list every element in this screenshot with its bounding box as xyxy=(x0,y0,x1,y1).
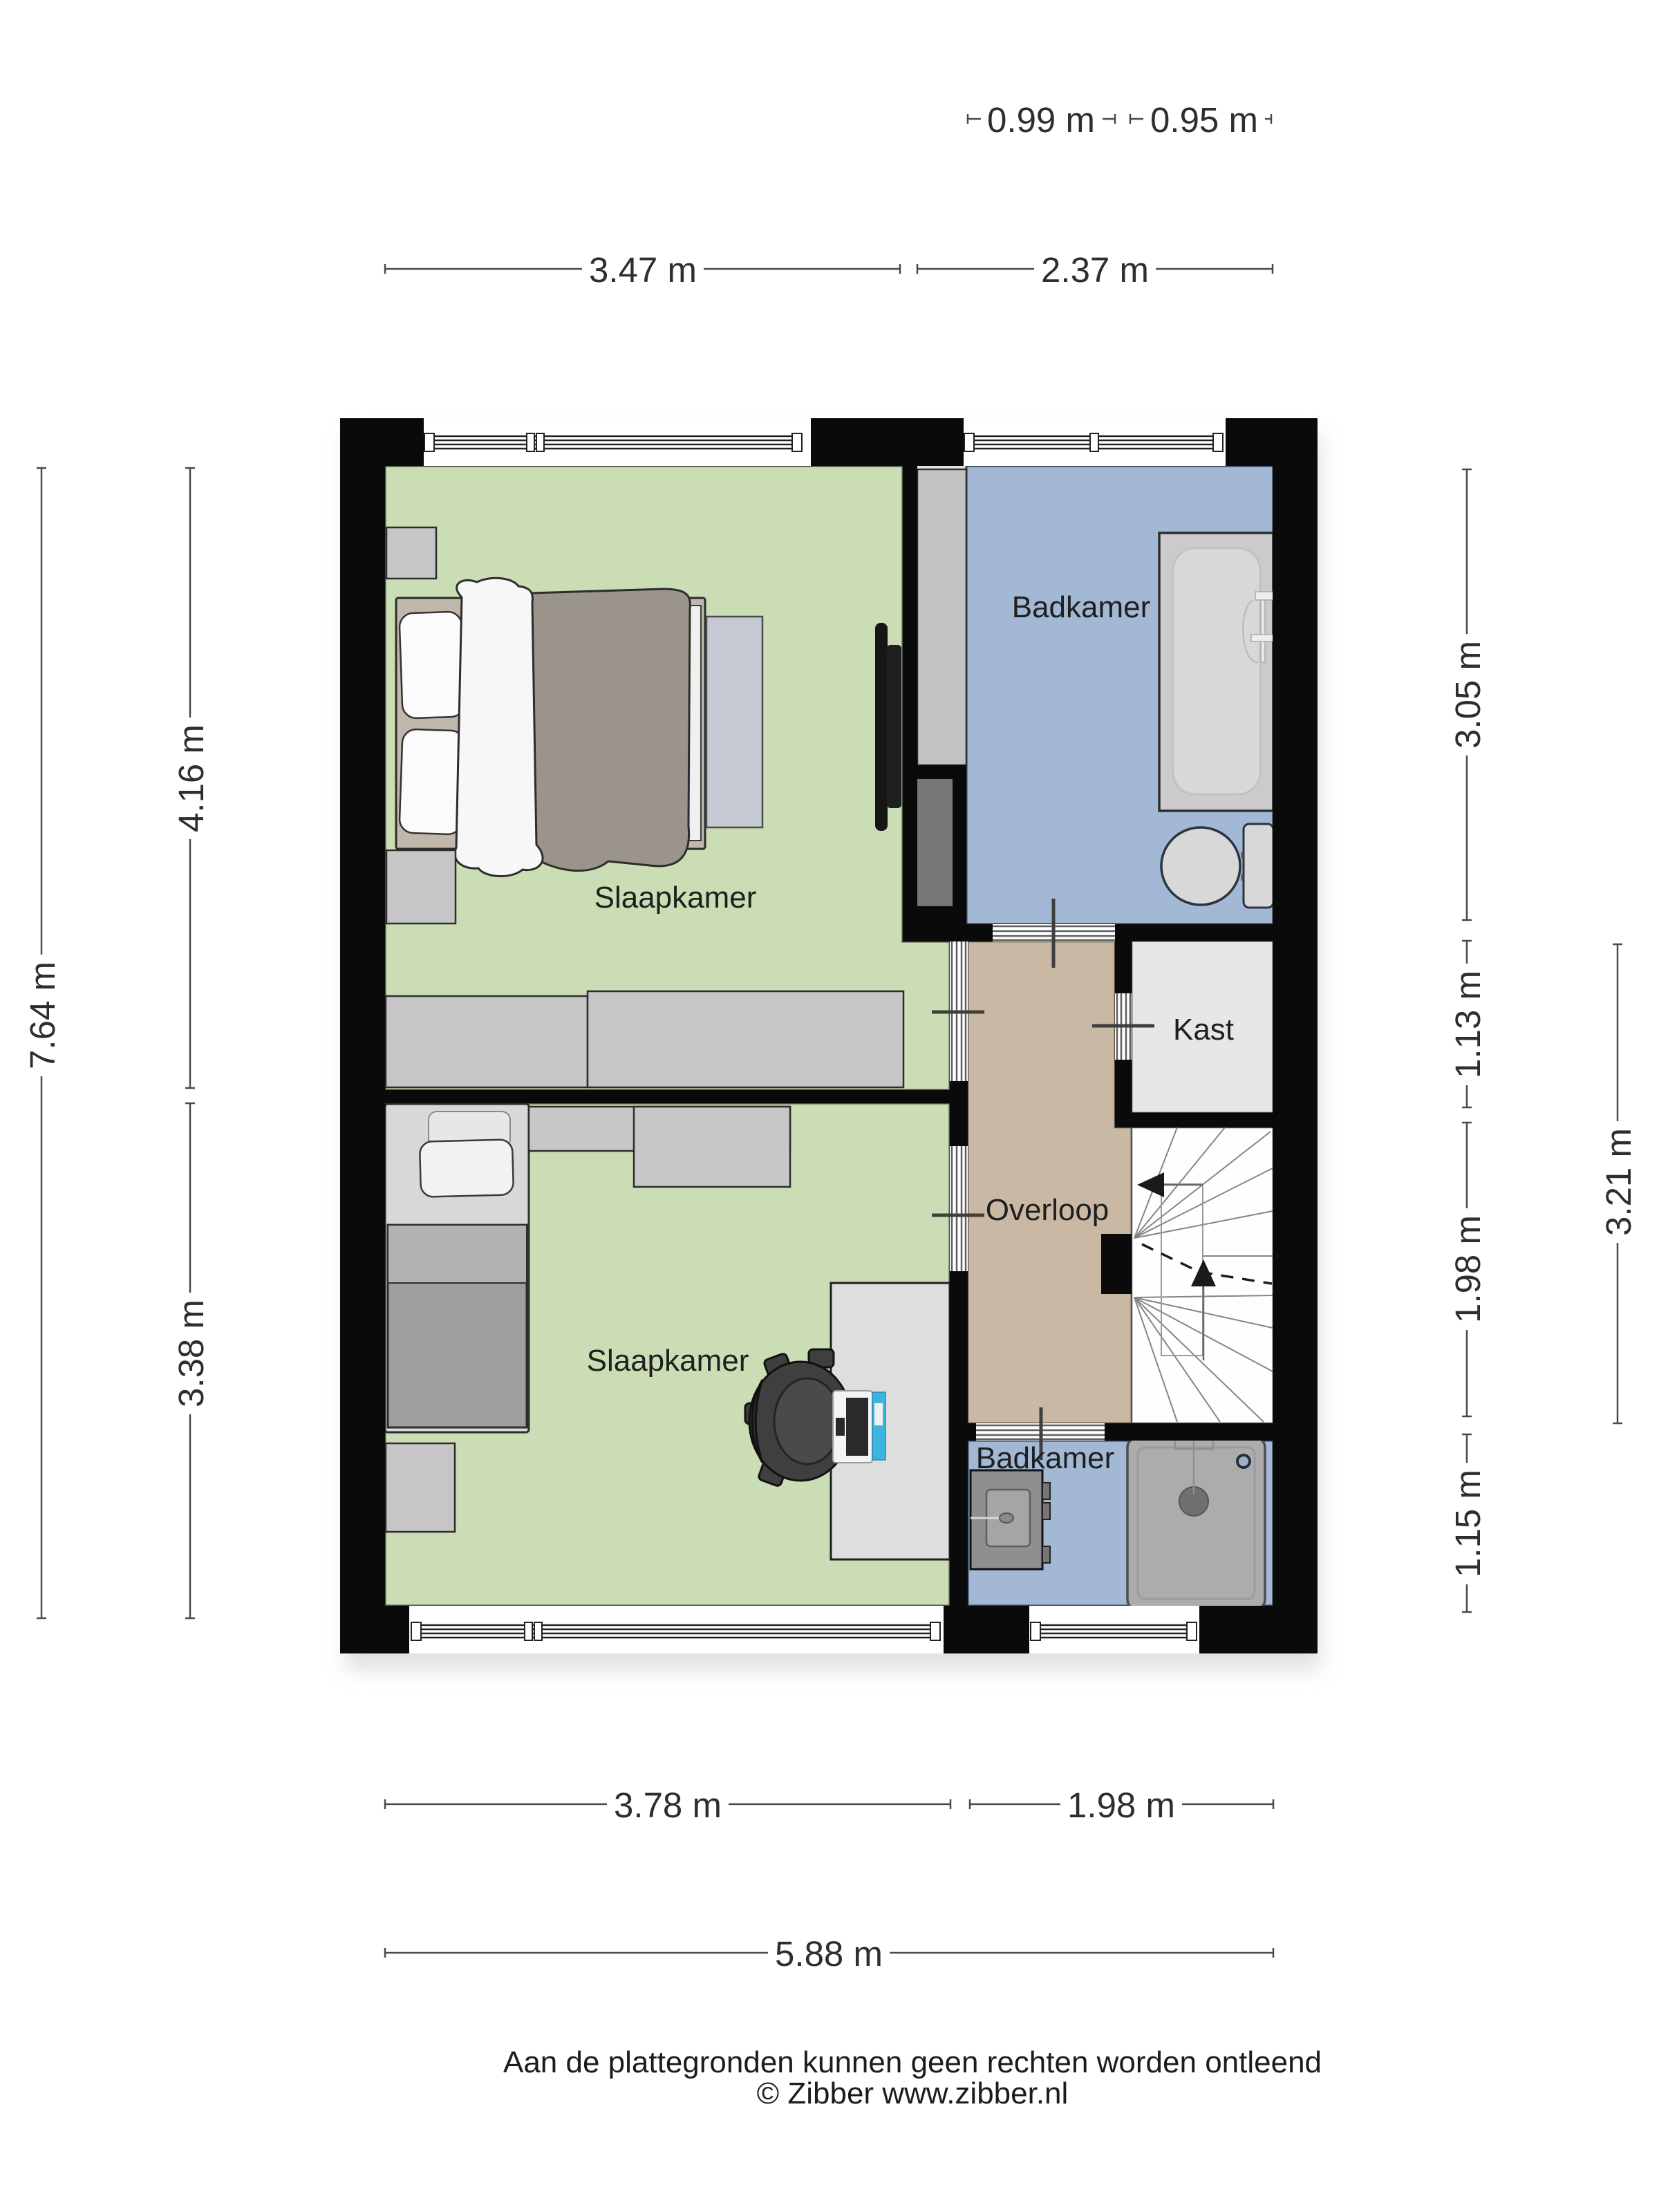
svg-text:Badkamer: Badkamer xyxy=(976,1441,1115,1475)
svg-text:3.78 m: 3.78 m xyxy=(614,1785,722,1825)
svg-text:3.38 m: 3.38 m xyxy=(171,1300,211,1407)
svg-text:2.37 m: 2.37 m xyxy=(1041,250,1149,290)
svg-text:Kast: Kast xyxy=(1173,1013,1234,1047)
svg-text:1.13 m: 1.13 m xyxy=(1448,971,1488,1078)
svg-text:Aan de plattegronden kunnen ge: Aan de plattegronden kunnen geen rechten… xyxy=(503,2045,1322,2079)
svg-text:Overloop: Overloop xyxy=(986,1193,1109,1227)
svg-text:4.16 m: 4.16 m xyxy=(171,724,211,832)
svg-text:7.64 m: 7.64 m xyxy=(23,962,62,1069)
svg-text:Badkamer: Badkamer xyxy=(1012,590,1151,624)
svg-text:1.98 m: 1.98 m xyxy=(1448,1215,1488,1323)
svg-text:© Zibber www.zibber.nl: © Zibber www.zibber.nl xyxy=(757,2077,1069,2110)
svg-text:0.95 m: 0.95 m xyxy=(1150,100,1258,140)
svg-text:5.88 m: 5.88 m xyxy=(775,1934,883,1974)
svg-text:1.98 m: 1.98 m xyxy=(1067,1785,1175,1825)
svg-text:1.15 m: 1.15 m xyxy=(1448,1470,1488,1577)
svg-text:Slaapkamer: Slaapkamer xyxy=(594,881,757,915)
svg-text:3.47 m: 3.47 m xyxy=(589,250,697,290)
svg-text:3.05 m: 3.05 m xyxy=(1448,641,1488,749)
svg-text:Slaapkamer: Slaapkamer xyxy=(587,1344,749,1378)
svg-text:0.99 m: 0.99 m xyxy=(987,100,1095,140)
svg-text:3.21 m: 3.21 m xyxy=(1599,1128,1638,1236)
